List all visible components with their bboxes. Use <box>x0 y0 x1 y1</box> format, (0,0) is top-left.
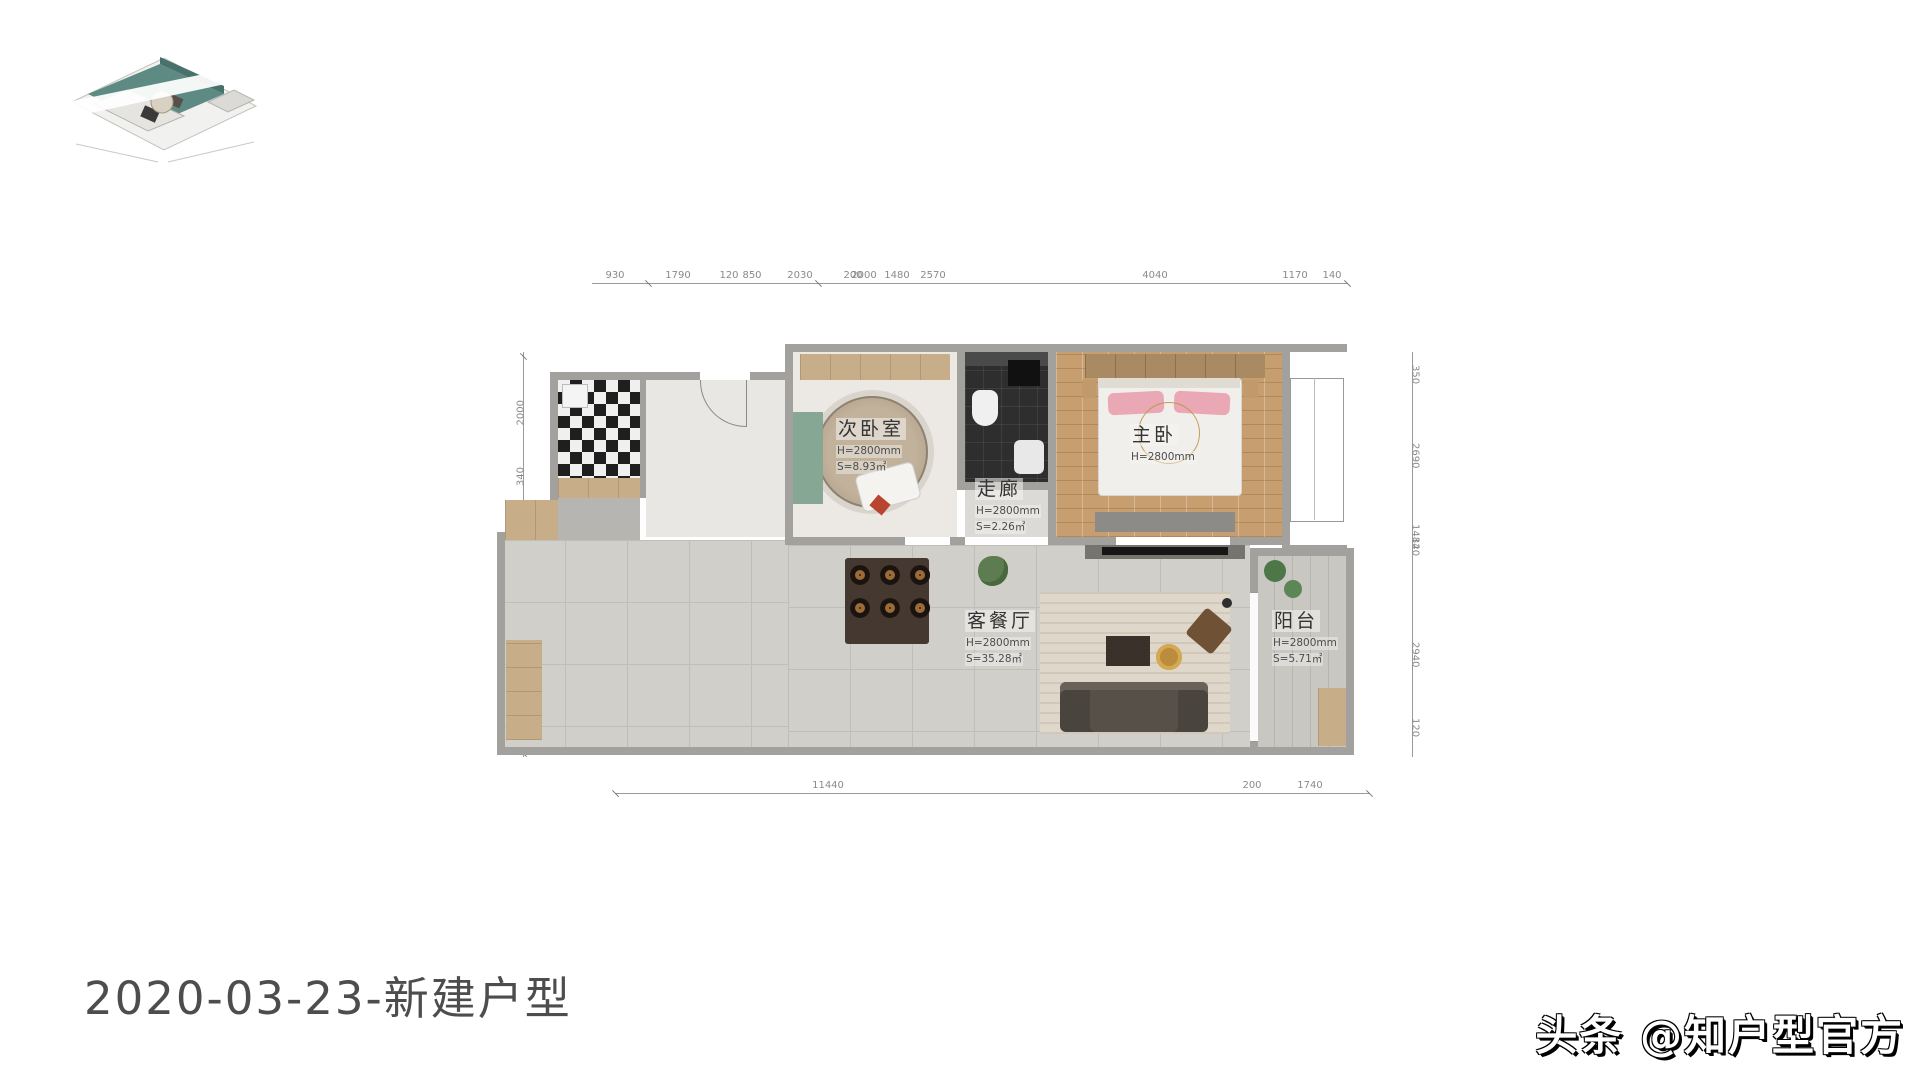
living-sofa <box>1060 682 1208 732</box>
room-area: S=8.93㎡ <box>836 461 887 474</box>
dim-label: 1480 <box>884 270 909 281</box>
room-height: H=2800mm <box>975 505 1041 518</box>
page-title: 2020-03-23-新建户型 <box>84 962 572 1027</box>
dim-label: 2000 <box>851 270 876 281</box>
dining-stool <box>880 598 900 618</box>
dim-label: 2030 <box>787 270 812 281</box>
master-nightstand-right <box>1244 380 1258 398</box>
bay-window-mullion <box>1314 378 1315 520</box>
dim-label: 1740 <box>1297 780 1322 791</box>
entry-counter-zone <box>558 498 640 540</box>
dim-label: 11440 <box>812 780 844 791</box>
wall-bottom <box>497 747 1354 755</box>
wall-entry-top <box>550 372 793 380</box>
wall-master-right <box>1282 344 1290 554</box>
dim-label: 930 <box>605 270 624 281</box>
dim-label: 120 <box>1410 537 1421 556</box>
bay-window <box>1290 378 1344 522</box>
wall-kitchen-entry <box>640 380 646 498</box>
room-height: H=2800mm <box>1272 637 1338 650</box>
master-nightstand-left <box>1082 380 1096 398</box>
room-name: 主卧 <box>1130 424 1178 446</box>
dim-label: 4040 <box>1142 270 1167 281</box>
room-height: H=2800mm <box>1130 451 1196 464</box>
wall-bedroom2-bathroom <box>957 344 965 490</box>
bedroom2-wardrobe <box>800 354 950 380</box>
bedroom2-green-cabinet <box>793 412 823 504</box>
dining-stool <box>880 565 900 585</box>
room-label-balcony: 阳台 H=2800mm S=5.71㎡ <box>1272 610 1338 666</box>
room-height: H=2800mm <box>965 637 1031 650</box>
room-label-corridor: 走廊 H=2800mm S=2.26㎡ <box>975 478 1041 534</box>
room-height: H=2800mm <box>836 445 902 458</box>
wall-bedroom2-bottom-west <box>785 537 905 545</box>
dim-label: 850 <box>742 270 761 281</box>
dim-label: 200 <box>1242 780 1261 791</box>
dim-label: 1790 <box>665 270 690 281</box>
wall-bedroom2-bottom-east <box>950 537 965 545</box>
plant-balcony-2 <box>1284 580 1302 598</box>
dim-label: 2000 <box>516 400 527 425</box>
wall-master-bottom-west <box>1056 537 1116 545</box>
dim-label: 120 <box>719 270 738 281</box>
floor-lamp <box>1222 598 1232 608</box>
dimline-top <box>592 283 1348 284</box>
wall-master-bottom-east <box>1290 545 1347 553</box>
gold-side-table <box>1156 644 1182 670</box>
dimline-bottom <box>615 793 1370 794</box>
wall-top <box>785 344 1347 352</box>
wall-bedroom2-left <box>785 344 793 545</box>
dim-label: 2570 <box>920 270 945 281</box>
watermark: 头条 @知户型官方 <box>1535 1002 1904 1063</box>
room-label-master: 主卧 H=2800mm <box>1130 424 1196 464</box>
bathroom-sink <box>1014 440 1044 474</box>
room-living-floor-west <box>503 540 788 747</box>
dim-label: 120 <box>1410 718 1421 737</box>
dining-stool <box>910 598 930 618</box>
room-area: S=2.26㎡ <box>975 521 1026 534</box>
room-name: 走廊 <box>975 478 1023 500</box>
dim-label: 2690 <box>1410 443 1421 468</box>
balcony-cabinet <box>1318 688 1346 746</box>
room-area: S=5.71㎡ <box>1272 653 1323 666</box>
dim-label: 340 <box>516 467 527 486</box>
dining-stool <box>850 598 870 618</box>
floorplan-canvas: 930 1790 120 850 2030 200 2000 1480 2570… <box>0 0 1920 1080</box>
shoe-cabinet <box>506 640 542 740</box>
bathroom-washer <box>1008 360 1040 386</box>
kitchen-counter <box>558 478 640 498</box>
wall-corridor-master <box>1048 344 1056 545</box>
dim-label: 140 <box>1322 270 1341 281</box>
balcony-window <box>1250 592 1258 742</box>
room-name: 次卧室 <box>836 418 906 440</box>
room-label-living: 客餐厅 H=2800mm S=35.28㎡ <box>965 610 1035 666</box>
dining-stool <box>910 565 930 585</box>
wall-balcony-right <box>1346 548 1354 755</box>
master-wardrobe <box>1085 354 1265 378</box>
coffee-table <box>1106 636 1150 666</box>
master-tv-bench <box>1095 512 1235 532</box>
front-door-opening <box>700 372 750 380</box>
entry-bench <box>505 500 558 540</box>
room-area: S=35.28㎡ <box>965 653 1023 666</box>
living-tv <box>1102 547 1228 555</box>
wall-left-lower <box>497 532 505 755</box>
dim-label: 1170 <box>1282 270 1307 281</box>
room-name: 阳台 <box>1272 610 1320 632</box>
front-door-leaf <box>746 380 747 426</box>
dim-label: 2940 <box>1410 642 1421 667</box>
master-bed-headboard <box>1098 378 1240 388</box>
plant-balcony-1 <box>1264 560 1286 582</box>
wall-master-bottom <box>1230 537 1290 545</box>
dim-label: 350 <box>1410 365 1421 384</box>
kitchen-fridge <box>562 384 588 408</box>
dining-stool <box>850 565 870 585</box>
room-name: 客餐厅 <box>965 610 1035 632</box>
bathroom-toilet <box>972 390 998 426</box>
room-label-bedroom2: 次卧室 H=2800mm S=8.93㎡ <box>836 418 906 474</box>
